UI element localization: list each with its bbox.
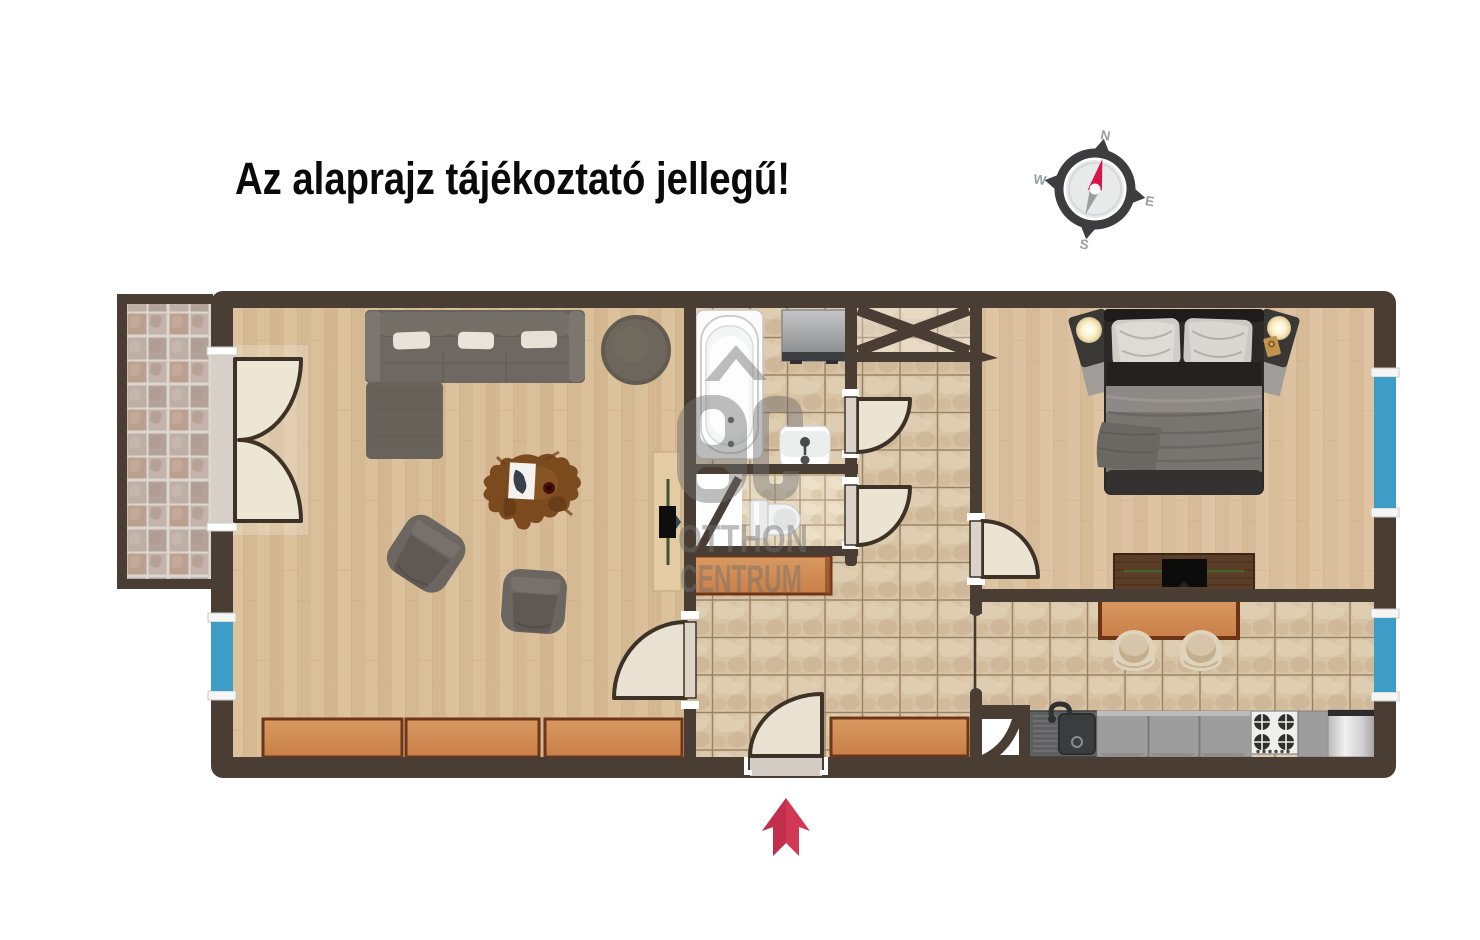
- svg-text:Az alaprajz tájékoztató jelleg: Az alaprajz tájékoztató jellegű!: [235, 153, 790, 204]
- svg-text:CENTRUM: CENTRUM: [680, 558, 802, 601]
- svg-text:OTTHON: OTTHON: [678, 518, 808, 561]
